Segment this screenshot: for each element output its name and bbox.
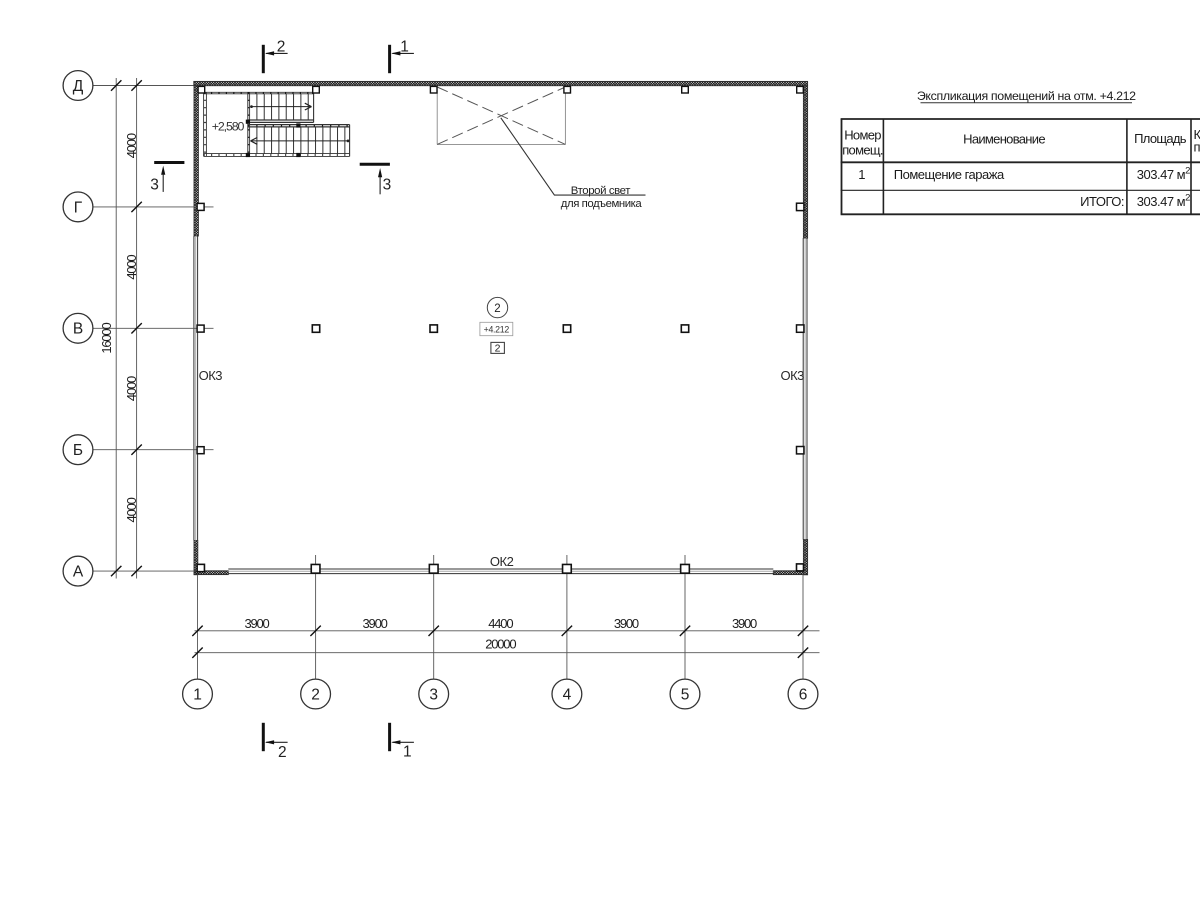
svg-text:для подъемника: для подъемника bbox=[561, 198, 643, 210]
svg-text:Площадь: Площадь bbox=[1134, 131, 1187, 146]
svg-text:3900: 3900 bbox=[614, 616, 639, 631]
svg-text:Д: Д bbox=[73, 78, 84, 95]
svg-text:1: 1 bbox=[400, 39, 409, 56]
svg-text:Помещение гаража: Помещение гаража bbox=[894, 167, 1005, 182]
svg-text:4400: 4400 bbox=[488, 616, 513, 631]
svg-text:3900: 3900 bbox=[363, 616, 388, 631]
svg-text:303.47 м2: 303.47 м2 bbox=[1137, 166, 1190, 183]
svg-text:4: 4 bbox=[563, 686, 572, 703]
svg-text:3: 3 bbox=[429, 686, 438, 703]
svg-text:1: 1 bbox=[858, 167, 865, 182]
svg-text:20000: 20000 bbox=[485, 637, 516, 652]
svg-text:Второй свет: Второй свет bbox=[571, 185, 631, 197]
svg-text:4000: 4000 bbox=[124, 255, 139, 280]
svg-text:4000: 4000 bbox=[124, 133, 139, 158]
svg-text:2: 2 bbox=[278, 744, 287, 761]
svg-text:303.47 м2: 303.47 м2 bbox=[1137, 192, 1190, 209]
svg-text:4000: 4000 bbox=[124, 497, 139, 522]
svg-text:А: А bbox=[73, 564, 84, 581]
svg-text:1: 1 bbox=[403, 743, 412, 760]
svg-text:ОК3: ОК3 bbox=[199, 368, 223, 383]
svg-text:3: 3 bbox=[383, 176, 392, 193]
svg-text:2: 2 bbox=[277, 39, 286, 56]
svg-text:+2,580: +2,580 bbox=[212, 120, 245, 134]
svg-text:2: 2 bbox=[495, 343, 501, 355]
svg-text:Наименование: Наименование bbox=[963, 131, 1045, 146]
svg-text:6: 6 bbox=[799, 686, 808, 703]
svg-text:Экспликация помещений на отм.: Экспликация помещений на отм. +4.212 bbox=[917, 89, 1136, 103]
svg-text:ИТОГО:: ИТОГО: bbox=[1080, 194, 1124, 209]
svg-text:4000: 4000 bbox=[124, 376, 139, 401]
svg-text:В: В bbox=[73, 321, 83, 338]
svg-text:3: 3 bbox=[150, 176, 159, 193]
svg-text:2: 2 bbox=[494, 303, 500, 315]
svg-text:пом.: пом. bbox=[1194, 140, 1200, 155]
svg-text:ОК2: ОК2 bbox=[490, 554, 514, 569]
svg-text:Б: Б bbox=[73, 442, 83, 459]
svg-text:3900: 3900 bbox=[732, 616, 757, 631]
svg-text:Г: Г bbox=[74, 199, 83, 216]
svg-text:1: 1 bbox=[193, 686, 202, 703]
svg-text:ОК3: ОК3 bbox=[781, 368, 805, 383]
svg-text:5: 5 bbox=[681, 686, 690, 703]
svg-text:+4.212: +4.212 bbox=[484, 325, 510, 335]
svg-text:2: 2 bbox=[311, 686, 320, 703]
svg-text:помещ.: помещ. bbox=[842, 142, 883, 157]
svg-text:16000: 16000 bbox=[99, 323, 114, 354]
svg-text:3900: 3900 bbox=[244, 616, 269, 631]
svg-text:Номер: Номер bbox=[844, 127, 881, 142]
